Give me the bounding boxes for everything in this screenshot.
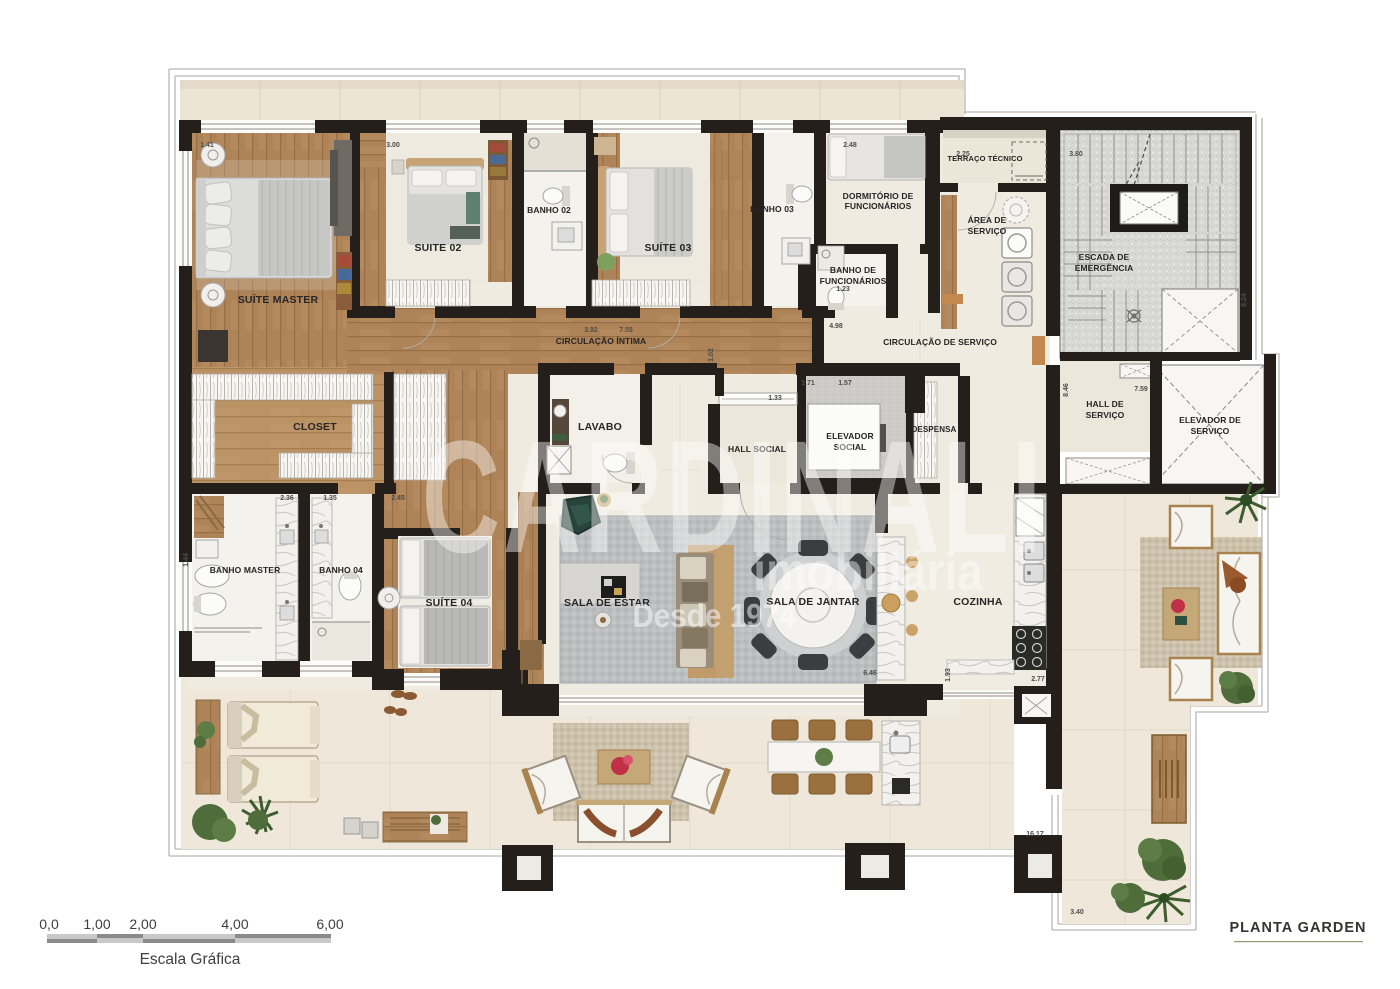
- svg-text:CIRCULAÇÃO ÍNTIMA: CIRCULAÇÃO ÍNTIMA: [556, 336, 646, 346]
- svg-text:ELEVADOR DE: ELEVADOR DE: [1179, 415, 1241, 425]
- svg-text:1.33: 1.33: [768, 395, 782, 402]
- svg-text:1.93: 1.93: [945, 668, 952, 682]
- svg-text:1.35: 1.35: [323, 495, 337, 502]
- svg-text:SUÍTE 04: SUÍTE 04: [425, 596, 472, 609]
- svg-text:0,0: 0,0: [39, 916, 59, 932]
- svg-text:1,00: 1,00: [83, 916, 110, 932]
- svg-text:2.36: 2.36: [280, 495, 294, 502]
- svg-text:imobiliária: imobiliária: [753, 542, 984, 602]
- svg-text:4,00: 4,00: [221, 916, 248, 932]
- svg-text:Escala Gráfica: Escala Gráfica: [140, 951, 241, 968]
- svg-text:3.40: 3.40: [1070, 909, 1084, 916]
- svg-text:SUITE 02: SUITE 02: [414, 242, 461, 254]
- svg-text:1.44: 1.44: [183, 553, 190, 567]
- svg-text:SUÍTE 03: SUÍTE 03: [644, 241, 691, 254]
- svg-text:16.17: 16.17: [1026, 831, 1044, 838]
- svg-text:ESCADA DE: ESCADA DE: [1079, 252, 1130, 262]
- svg-text:BANHO DE: BANHO DE: [830, 265, 876, 275]
- svg-text:3.92: 3.92: [584, 327, 598, 334]
- svg-text:PLANTA GARDEN: PLANTA GARDEN: [1229, 920, 1366, 936]
- svg-text:8.24: 8.24: [1241, 293, 1248, 307]
- svg-text:EMERGÊNCIA: EMERGÊNCIA: [1075, 262, 1134, 273]
- svg-text:SERVIÇO: SERVIÇO: [1086, 410, 1125, 420]
- svg-text:3.80: 3.80: [1069, 151, 1083, 158]
- svg-text:FUNCIONÁRIOS: FUNCIONÁRIOS: [820, 276, 887, 286]
- svg-text:CIRCULAÇÃO DE SERVIÇO: CIRCULAÇÃO DE SERVIÇO: [883, 337, 997, 347]
- svg-text:Desde 1974: Desde 1974: [632, 598, 796, 635]
- svg-text:SUÍTE MASTER: SUÍTE MASTER: [238, 293, 319, 306]
- svg-text:CLOSET: CLOSET: [293, 421, 337, 433]
- svg-text:2,00: 2,00: [129, 916, 156, 932]
- svg-text:7.59: 7.59: [1134, 386, 1148, 393]
- svg-text:BANHO 03: BANHO 03: [750, 204, 794, 214]
- svg-text:SERVIÇO: SERVIÇO: [968, 226, 1007, 236]
- svg-text:BANHO MASTER: BANHO MASTER: [210, 565, 281, 575]
- svg-text:BANHO 02: BANHO 02: [527, 205, 571, 215]
- svg-text:FUNCIONÁRIOS: FUNCIONÁRIOS: [845, 201, 912, 211]
- svg-text:1.02: 1.02: [708, 348, 715, 362]
- svg-text:1.71: 1.71: [801, 380, 815, 387]
- svg-text:HALL DE: HALL DE: [1086, 399, 1124, 409]
- svg-text:2.48: 2.48: [843, 142, 857, 149]
- svg-text:2.45: 2.45: [391, 495, 405, 502]
- svg-text:1.57: 1.57: [838, 380, 852, 387]
- svg-text:6.46: 6.46: [863, 670, 877, 677]
- svg-text:1.23: 1.23: [836, 286, 850, 293]
- svg-text:2.25: 2.25: [956, 151, 970, 158]
- svg-text:1.41: 1.41: [200, 142, 214, 149]
- svg-text:8.46: 8.46: [1063, 383, 1070, 397]
- svg-text:SERVIÇO: SERVIÇO: [1191, 426, 1230, 436]
- svg-text:DORMITÓRIO DE: DORMITÓRIO DE: [843, 190, 914, 201]
- svg-text:6,00: 6,00: [316, 916, 343, 932]
- svg-text:2.77: 2.77: [1031, 676, 1045, 683]
- svg-text:ÁREA DE: ÁREA DE: [968, 215, 1007, 225]
- svg-text:BANHO 04: BANHO 04: [319, 565, 363, 575]
- svg-text:7.55: 7.55: [619, 327, 633, 334]
- svg-text:4.98: 4.98: [829, 323, 843, 330]
- svg-text:3.00: 3.00: [386, 142, 400, 149]
